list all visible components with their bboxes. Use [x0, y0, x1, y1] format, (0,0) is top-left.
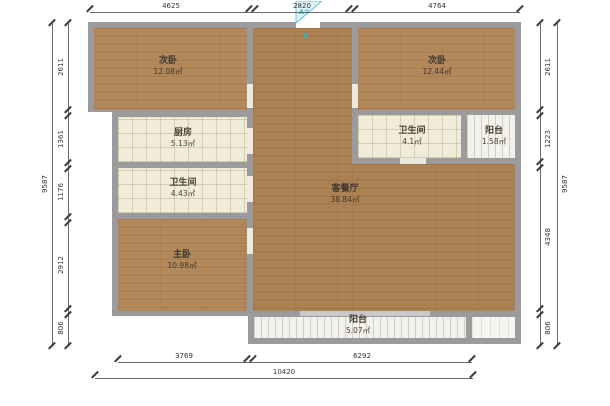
left-notch-cutout: [88, 112, 112, 316]
door-gap-bedroom-tr: [352, 84, 358, 108]
dim-top-2: 2820: [293, 2, 311, 10]
dim-top-1: 4625: [162, 2, 180, 10]
floor-plan-canvas: A② ▼ 次卧 12.08㎡ 厨房 5.13㎡ 卫生间 4.43㎡ 主卧 10.…: [0, 0, 610, 406]
room-bath-right-floor: [358, 115, 461, 158]
door-gap-bath-left: [247, 176, 253, 202]
door-gap-kitchen: [247, 128, 253, 154]
dim-right-3: 4348: [544, 228, 552, 246]
dim-left-5: 806: [57, 321, 65, 334]
room-living-floor-wide: [352, 164, 515, 311]
dim-top-3: 4764: [428, 2, 446, 10]
dim-bottom-1: 3769: [175, 352, 193, 360]
dim-right-1: 2611: [544, 58, 552, 76]
room-master-bedroom-floor: [118, 219, 247, 311]
room-bedroom-top-right-floor: [358, 28, 515, 110]
dim-left-3: 1176: [57, 183, 65, 201]
balcony-slider-line: [300, 311, 430, 316]
dim-line-right: [540, 22, 541, 345]
room-balcony-bottom-floor: [254, 317, 466, 338]
dim-right-2: 1223: [544, 130, 552, 148]
door-gap-master: [247, 228, 253, 254]
room-living-floor-column: [253, 28, 352, 311]
dim-bottom-2: 6292: [353, 352, 371, 360]
dim-left-1: 2611: [57, 58, 65, 76]
dim-right-4: 806: [544, 321, 552, 334]
room-balcony-top-right-floor: [467, 115, 515, 158]
dim-line-bottom: [118, 362, 472, 363]
dim-bottom-total: 10420: [273, 368, 295, 376]
dim-line-right-total: [557, 22, 558, 345]
bottom-right-ledge-floor: [472, 317, 515, 338]
dim-left-total: 9587: [41, 175, 49, 193]
dim-line-bottom-total: [95, 378, 473, 379]
dim-right-total: 9587: [561, 175, 569, 193]
dim-left-4: 2912: [57, 256, 65, 274]
door-gap-bath-right: [400, 158, 426, 164]
room-bath-left-floor: [118, 168, 247, 213]
dim-line-top: [90, 12, 520, 13]
door-gap-bedroom-tl: [247, 84, 253, 108]
dim-left-2: 1361: [57, 130, 65, 148]
dim-line-left: [68, 22, 69, 345]
room-bedroom-top-left-floor: [94, 28, 247, 110]
dim-line-left-total: [52, 22, 53, 345]
entry-direction-arrow-icon: ▼: [303, 32, 308, 40]
room-kitchen-floor: [118, 117, 247, 162]
